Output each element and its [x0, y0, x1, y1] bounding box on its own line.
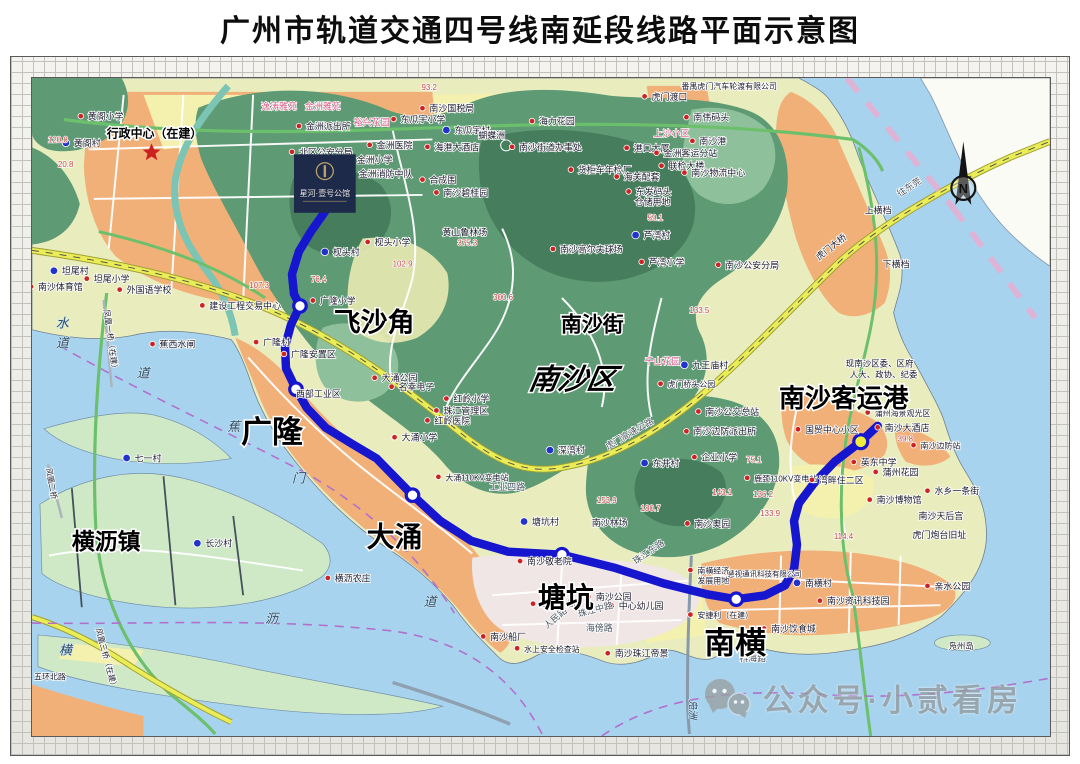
- poi-dot-red: [389, 384, 395, 390]
- poi-label: 外国语学校: [127, 284, 172, 295]
- poi-dot-red: [436, 474, 442, 480]
- poi-label: 南沙街道办事处: [519, 141, 582, 152]
- poi-label: 七一村: [135, 453, 162, 464]
- poi-label: 75.1: [746, 456, 762, 465]
- poi-label: 金洲客运分站: [664, 147, 718, 158]
- poi-dot-blue: [632, 231, 640, 239]
- poi-dot-red: [253, 339, 259, 345]
- poi-dot-blue: [443, 126, 451, 134]
- poi-dot-red: [150, 341, 156, 347]
- poi-label: 南横村: [805, 577, 832, 588]
- ad-overlay-title: 星河·壹号公馆: [300, 188, 350, 198]
- poi-label: 工业四路: [489, 481, 525, 492]
- poi-label: 名幸电子: [399, 381, 435, 392]
- poi-label: 广隆安置区: [291, 348, 336, 359]
- poi-label: 广隆小学: [320, 295, 356, 306]
- poi-dot-red: [78, 113, 84, 119]
- poi-dot-red: [688, 567, 694, 573]
- poi-label: 南沙饮食城: [771, 623, 816, 634]
- poi-dot-red: [716, 262, 722, 268]
- poi-dot-red: [530, 601, 536, 607]
- poi-label: 湾畔住二区: [819, 474, 864, 485]
- poi-label: 180.7: [641, 504, 662, 513]
- area-label: 南沙区: [527, 364, 624, 396]
- route-map-svg: 黄阁小学黄阁村120.820.893.2南沙国税局东瓜宇小学东瓜宇村海港大酒店蝴…: [32, 78, 1050, 736]
- poi-label: 芦湾小学: [649, 256, 685, 267]
- poi-label: 凫洲: [686, 699, 698, 721]
- poi-label: 102.9: [393, 259, 414, 268]
- poi-label: 企业小学: [701, 452, 737, 463]
- poi-label: 亲水公园: [934, 580, 970, 591]
- poi-dot-red: [372, 375, 378, 381]
- poi-label: 道: [56, 336, 71, 351]
- poi-label: 现南沙区委、区府: [846, 358, 914, 368]
- poi-label: 合成围: [429, 174, 456, 185]
- poi-dot-red: [685, 521, 691, 527]
- poi-label: 蕉西水闸: [159, 339, 195, 350]
- poi-dot-red: [434, 190, 440, 196]
- poi-label: 沥: [265, 611, 280, 626]
- poi-label: 发展用地: [697, 575, 729, 585]
- poi-dot-blue: [194, 539, 202, 547]
- poi-dot-red: [692, 454, 698, 460]
- poi-label: 南沙边防派出所: [693, 426, 756, 437]
- poi-label: 水上安全检查站: [524, 644, 580, 654]
- poi-label: 坦尾村: [62, 265, 89, 276]
- poi-dot-red: [391, 116, 397, 122]
- poi-label: 国贸中心小区: [805, 424, 859, 435]
- poi-dot-blue: [681, 361, 689, 369]
- poi-dot-red: [568, 167, 574, 173]
- station-label: 塘坑: [538, 582, 594, 613]
- poi-dot-blue: [546, 446, 554, 454]
- poi-label: 59.1: [648, 214, 664, 223]
- poi-label: 安捷利（在建）: [697, 610, 753, 620]
- poi-dot-red: [517, 558, 523, 564]
- poi-dot-red: [925, 488, 931, 494]
- poi-dot-red: [817, 598, 823, 604]
- poi-label: 红岭小学: [453, 393, 489, 404]
- poi-label: 375.3: [457, 238, 478, 247]
- poi-dot-blue: [793, 579, 801, 587]
- poi-label: 143.1: [712, 488, 733, 497]
- poi-dot-red: [682, 170, 688, 176]
- area-label: 横沥镇: [72, 529, 141, 555]
- poi-label: 136.2: [753, 490, 774, 499]
- poi-dot-red: [639, 259, 645, 265]
- poi-dot-red: [550, 246, 556, 252]
- poi-dot-red: [642, 94, 648, 100]
- poi-dot-blue: [520, 518, 528, 526]
- poi-label: 金洲雅苑: [305, 101, 341, 112]
- poi-label: 南沙物流中心: [691, 167, 745, 178]
- poi-label: 英东中学: [861, 456, 897, 467]
- poi-label: 南沙边防站: [921, 441, 961, 451]
- poi-label: 114.4: [834, 532, 854, 541]
- poi-label: 道: [423, 594, 438, 609]
- station-label: 大涌: [367, 522, 423, 553]
- poi-label: 南沙高尔夫球场: [560, 243, 623, 254]
- poi-dot-red: [200, 303, 206, 309]
- poi-label: 76.4: [311, 275, 327, 284]
- poi-dot-red: [509, 144, 515, 150]
- poi-dot-red: [809, 477, 815, 483]
- poi-dot-red: [84, 276, 90, 282]
- poi-dot-red: [690, 138, 696, 144]
- compass-label: N: [959, 181, 968, 196]
- poi-label: 东瓜宇小学: [401, 114, 446, 125]
- poi-dot-blue: [321, 248, 329, 256]
- poi-label: 芦湾村: [644, 230, 671, 241]
- poi-dot-red: [310, 298, 316, 304]
- poi-label: 东井村: [653, 457, 680, 468]
- poi-dot-red: [434, 408, 440, 414]
- poi-dot-red: [658, 381, 664, 387]
- poi-dot-red: [851, 459, 857, 465]
- poi-label: 大涌小学: [402, 432, 438, 443]
- poi-label: 仓储用地: [635, 196, 671, 207]
- poi-dot-red: [911, 442, 917, 448]
- poi-label: 39.8: [898, 435, 914, 444]
- poi-label: 道: [137, 365, 152, 380]
- station-label: 南沙客运港: [779, 383, 910, 413]
- poi-dot-red: [684, 114, 690, 120]
- poi-label: 蒲州花园: [883, 466, 919, 477]
- station-label: 飞沙角: [334, 307, 415, 338]
- poi-label: 南沙林场: [592, 517, 628, 528]
- poi-label: 93.2: [421, 83, 437, 92]
- poi-dot-blue: [641, 459, 649, 467]
- poi-label: 南沙敬老院: [527, 556, 572, 567]
- poi-label: 南沙公安分局: [725, 259, 779, 270]
- station-label: 南横: [704, 626, 766, 661]
- poi-label: 大涌110KV变电站: [445, 472, 508, 482]
- poi-dot-red: [925, 583, 931, 589]
- station-marker: [730, 593, 743, 605]
- poi-dot-red: [529, 118, 535, 124]
- poi-label: 水乡一条街: [934, 485, 979, 496]
- poi-label: 红岭医院: [434, 415, 470, 426]
- poi-label: 南沙国税局: [429, 103, 474, 114]
- poi-label: 南沙资讯科技园: [827, 595, 890, 606]
- poi-label: 南沙公交总站: [705, 406, 759, 417]
- station-marker: [294, 300, 307, 312]
- poi-label: 南沙珠江帝景: [615, 648, 669, 659]
- poi-label: 金洲消防中队: [359, 168, 413, 179]
- poi-dot-red: [795, 427, 801, 433]
- poi-label: 深湾村: [558, 445, 585, 456]
- poi-label: 建设工程交易中心: [209, 300, 281, 311]
- poi-label: 门: [292, 470, 307, 485]
- station-label: 广隆: [241, 415, 304, 450]
- poi-dot-red: [605, 650, 611, 656]
- poi-label: 南横经济: [697, 566, 729, 576]
- poi-dot-red: [744, 475, 750, 481]
- poi-dot-red: [659, 163, 665, 169]
- poi-label: 300.6: [493, 293, 514, 302]
- poi-dot-red: [296, 123, 302, 129]
- poi-dot-blue: [50, 267, 58, 275]
- poi-label: 南沙船厂: [490, 631, 526, 642]
- poi-label: 上横档: [865, 205, 892, 216]
- poi-dot-red: [688, 612, 694, 618]
- poi-dot-red: [873, 469, 879, 475]
- poi-label: 南沙港: [699, 135, 726, 146]
- poi-label: 下横档: [883, 258, 910, 269]
- poi-dot-red: [684, 429, 690, 435]
- poi-label: 人大、政协、纪委: [850, 369, 918, 379]
- poi-label: 广隆村: [263, 337, 290, 348]
- poi-label: 蕉: [227, 419, 242, 434]
- poi-label: 153.9: [597, 496, 618, 505]
- poi-label: 虎门渡口: [652, 91, 688, 102]
- poi-dot-red: [425, 144, 431, 150]
- poi-label: 南沙大酒店: [885, 422, 930, 433]
- poi-label: 南沙奥园: [694, 518, 730, 529]
- area-label: 行政中心（在建）: [106, 126, 202, 140]
- poi-dot-red: [514, 646, 520, 652]
- poi-label: 西部工业区: [296, 388, 341, 399]
- poi-dot-red: [696, 409, 702, 415]
- poi-label: 黄阁小学: [88, 111, 124, 122]
- poi-label: 上沙小区: [654, 128, 690, 138]
- poi-label: 蝴蝶洲: [478, 129, 505, 140]
- poi-label: 133.5: [689, 306, 710, 315]
- poi-label: 九王庙村: [692, 359, 728, 370]
- poi-dot-red: [480, 634, 486, 640]
- poi-label: 107.3: [249, 281, 270, 290]
- poi-dot-red: [420, 177, 426, 183]
- poi-label: 番禺虎门汽车轮渡有限公司: [681, 81, 777, 91]
- poi-label: 海力花园: [539, 116, 575, 127]
- poi-label: 金洲派出所: [306, 121, 351, 132]
- poi-dot-red: [117, 287, 123, 293]
- poi-label: 南沙天后宫: [919, 510, 964, 521]
- map-canvas: 黄阁小学黄阁村120.820.893.2南沙国税局东瓜宇小学东瓜宇村海港大酒店蝴…: [31, 77, 1051, 737]
- poi-label: 珠江管理区: [443, 405, 488, 416]
- poi-label: 南沙碧桂园: [443, 187, 488, 198]
- poi-label: 黄阁村: [74, 137, 101, 148]
- poi-label: 横: [59, 643, 74, 658]
- poi-label: 133.9: [760, 509, 781, 518]
- poi-label: 裕兴花园: [354, 117, 390, 128]
- area-label: 南沙街: [561, 313, 624, 337]
- poi-label: 枧头小学: [375, 236, 411, 247]
- poi-dot-red: [289, 149, 295, 155]
- poi-dot-red: [365, 239, 371, 245]
- poi-label: 凫州岛: [948, 641, 973, 651]
- poi-label: 中心幼儿园: [619, 600, 664, 611]
- poi-label: 横沥农庄: [335, 572, 371, 583]
- poi-label: 海关配套: [624, 171, 660, 182]
- poi-label: 坦尾小学: [94, 273, 130, 284]
- poi-label: 五环北路: [34, 672, 66, 682]
- poi-label: 塘坑村: [532, 516, 559, 527]
- poi-label: 黄山鲁林场: [442, 227, 487, 238]
- screenshot-root: 广州市轨道交通四号线南延段线路平面示意图: [0, 0, 1080, 764]
- poi-label: 海港大酒店: [434, 141, 479, 152]
- poi-dot-red: [325, 575, 331, 581]
- poi-label: 逸涛雅苑: [261, 101, 297, 112]
- poi-label: 枧头村: [333, 246, 360, 257]
- poi-label: 虎门炮台旧址: [913, 529, 967, 540]
- poi-label: 120.8: [48, 135, 69, 144]
- poi-label: 南伟码头: [693, 112, 729, 123]
- poi-dot-red: [614, 174, 620, 180]
- poi-label: 水: [56, 316, 70, 331]
- poi-label: 千山花园: [645, 355, 681, 366]
- poi-label: 南沙体育馆: [38, 281, 83, 292]
- poi-dot-red: [867, 497, 873, 503]
- poi-label: 虎门桥头公园: [668, 379, 716, 389]
- poi-dot-red: [444, 396, 450, 402]
- poi-dot-red: [367, 142, 373, 148]
- poi-label: 鹿颈110KV变电站: [754, 473, 817, 483]
- poi-dot-red: [420, 105, 426, 111]
- poi-label: 东发码头: [636, 186, 672, 197]
- poi-label: 长沙村: [205, 538, 232, 549]
- station-marker: [406, 489, 419, 501]
- poi-dot-blue: [123, 454, 131, 462]
- poi-label: 南沙博物馆: [877, 494, 922, 505]
- poi-label: 20.8: [58, 160, 74, 169]
- poi-dot-red: [626, 189, 632, 195]
- decorative-border: 黄阁小学黄阁村120.820.893.2南沙国税局东瓜宇小学东瓜宇村海港大酒店蝴…: [10, 56, 1070, 756]
- page-title: 广州市轨道交通四号线南延段线路平面示意图: [0, 0, 1080, 56]
- poi-dot-red: [875, 425, 881, 431]
- poi-dot-red: [624, 145, 630, 151]
- poi-label: 海傍路: [586, 622, 613, 633]
- poi-dot-red: [425, 418, 431, 424]
- poi-dot-red: [281, 351, 287, 357]
- poi-label: 慧视通讯科技有限公司: [727, 568, 802, 578]
- poi-label: 金洲医院: [377, 139, 413, 150]
- poi-label: 金洲小学: [357, 154, 393, 165]
- poi-dot-red: [392, 434, 398, 440]
- ad-overlay-logo: 星河·壹号公馆: [294, 154, 356, 212]
- poi-dot-red: [654, 150, 660, 156]
- station-marker: [854, 435, 868, 449]
